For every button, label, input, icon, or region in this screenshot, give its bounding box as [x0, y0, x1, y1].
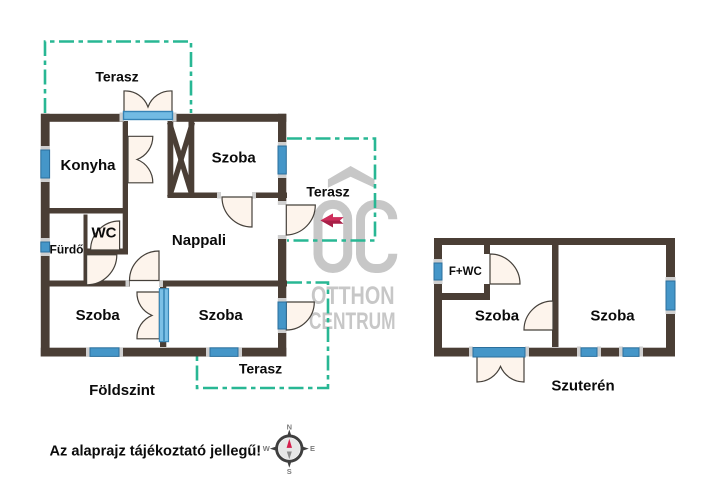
svg-text:Szoba: Szoba	[475, 308, 520, 325]
svg-text:Szoba: Szoba	[76, 307, 121, 324]
svg-text:Földszint: Földszint	[89, 382, 155, 399]
svg-text:F+WC: F+WC	[449, 266, 482, 278]
svg-text:E: E	[310, 444, 315, 453]
svg-text:Terasz: Terasz	[239, 360, 282, 376]
svg-text:S: S	[287, 467, 292, 476]
svg-text:Terasz: Terasz	[95, 69, 138, 85]
svg-text:Szuterén: Szuterén	[551, 378, 614, 395]
svg-text:Szoba: Szoba	[199, 307, 244, 324]
svg-text:Az alaprajz tájékoztató jelleg: Az alaprajz tájékoztató jellegű!	[50, 444, 262, 460]
svg-text:CENTRUM: CENTRUM	[309, 308, 396, 335]
svg-text:OTTHON: OTTHON	[311, 282, 395, 310]
svg-text:Konyha: Konyha	[60, 157, 116, 174]
svg-text:Terasz: Terasz	[306, 184, 349, 200]
svg-text:Szoba: Szoba	[590, 308, 635, 325]
svg-text:Nappali: Nappali	[172, 232, 226, 249]
svg-text:N: N	[287, 422, 292, 431]
svg-text:WC: WC	[92, 224, 117, 241]
svg-text:Szoba: Szoba	[212, 150, 257, 167]
svg-text:W: W	[263, 444, 271, 453]
svg-text:Fürdő: Fürdő	[50, 243, 84, 257]
